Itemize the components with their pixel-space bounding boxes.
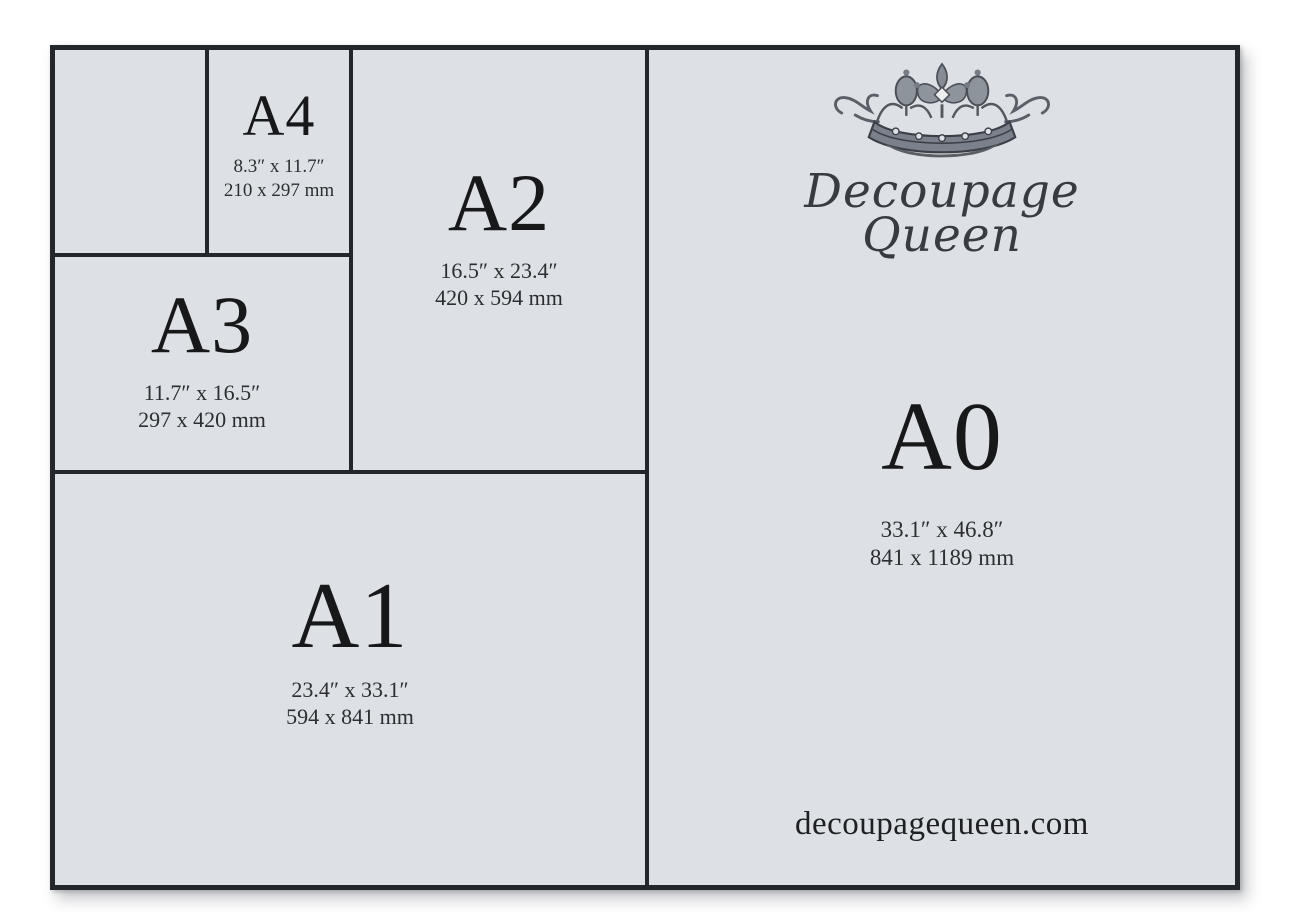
crown-icon (826, 60, 1058, 168)
chart-frame: A4 8.3″ x 11.7″ 210 x 297 mm A3 11.7″ x … (50, 45, 1240, 890)
a1-label: A1 (292, 569, 409, 663)
a2-inches: 16.5″ x 23.4″ (435, 258, 563, 285)
a4-label: A4 (243, 87, 316, 145)
a2-dimensions: 16.5″ x 23.4″ 420 x 594 mm (435, 258, 563, 312)
a1-inches: 23.4″ x 33.1″ (286, 677, 414, 704)
paper-size-chart: A4 8.3″ x 11.7″ 210 x 297 mm A3 11.7″ x … (0, 0, 1290, 912)
a3-mm: 297 x 420 mm (138, 407, 266, 434)
a3-label: A3 (151, 284, 253, 366)
a1-dimensions: 23.4″ x 33.1″ 594 x 841 mm (286, 677, 414, 731)
cell-a5-empty (55, 50, 205, 253)
a4-inches: 8.3″ x 11.7″ (224, 155, 334, 178)
a3-inches: 11.7″ x 16.5″ (138, 380, 266, 407)
brand-logo: Decoupage Queen (649, 60, 1235, 260)
a4-dimensions: 8.3″ x 11.7″ 210 x 297 mm (224, 155, 334, 201)
website-text: decoupagequeen.com (649, 806, 1235, 843)
cell-a0: Decoupage Queen A0 33.1″ x 46.8″ 841 x 1… (645, 50, 1235, 885)
cell-a2: A2 16.5″ x 23.4″ 420 x 594 mm (349, 50, 645, 470)
a0-inches: 33.1″ x 46.8″ (649, 516, 1235, 544)
a3-dimensions: 11.7″ x 16.5″ 297 x 420 mm (138, 380, 266, 434)
a4-mm: 210 x 297 mm (224, 179, 334, 202)
a2-mm: 420 x 594 mm (435, 285, 563, 312)
a0-size-block: A0 33.1″ x 46.8″ 841 x 1189 mm (649, 388, 1235, 572)
a2-label: A2 (448, 162, 550, 244)
brand-name-line2: Queen (649, 212, 1235, 260)
a1-mm: 594 x 841 mm (286, 704, 414, 731)
a0-label: A0 (649, 388, 1235, 486)
cell-a4: A4 8.3″ x 11.7″ 210 x 297 mm (205, 50, 349, 253)
a0-mm: 841 x 1189 mm (649, 544, 1235, 572)
cell-a1: A1 23.4″ x 33.1″ 594 x 841 mm (55, 470, 645, 885)
a0-dimensions: 33.1″ x 46.8″ 841 x 1189 mm (649, 516, 1235, 572)
cell-a3: A3 11.7″ x 16.5″ 297 x 420 mm (55, 253, 349, 470)
